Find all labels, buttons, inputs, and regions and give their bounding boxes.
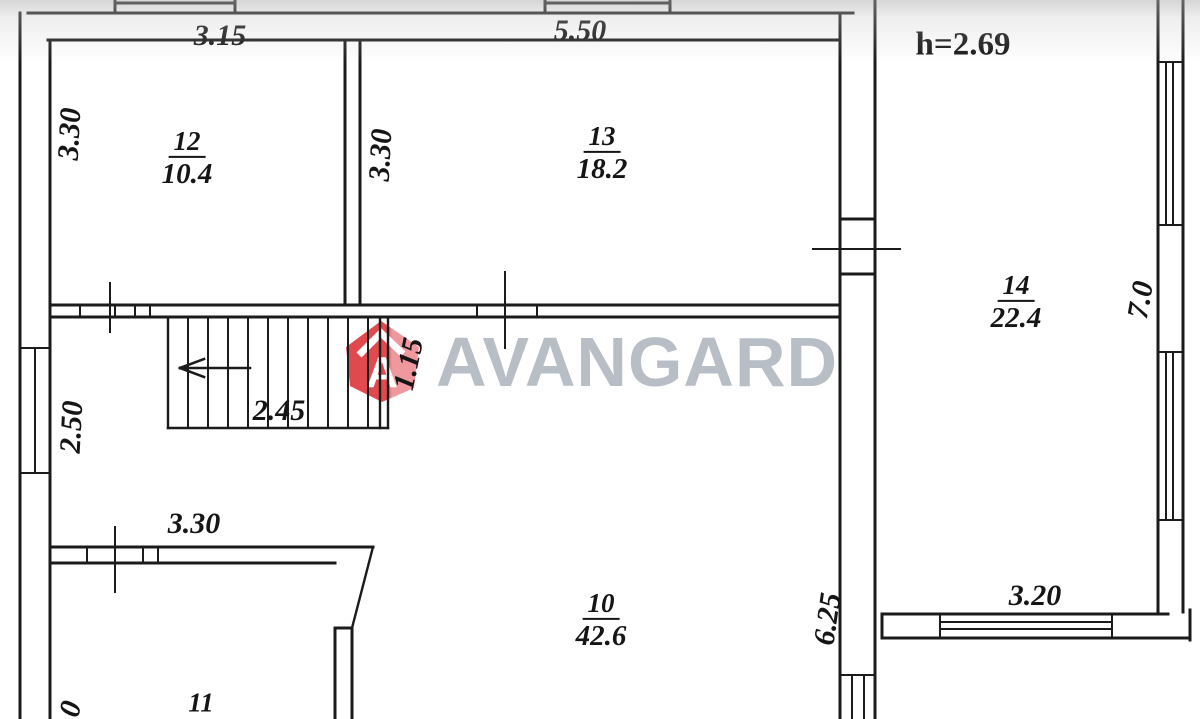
dim-room14-right: 7.0: [1121, 279, 1161, 322]
dim-room12-left: 3.30: [52, 107, 89, 161]
stair-direction-arrow: [180, 359, 250, 377]
room-11-number: 11: [183, 688, 219, 717]
room-14-area: 22.4: [991, 302, 1042, 335]
dim-room13-left: 3.30: [363, 128, 400, 182]
room-11-label: 11: [183, 688, 219, 717]
ceiling-height-label: h=2.69: [916, 27, 1011, 64]
room-12-number: 12: [169, 127, 206, 158]
room-10-area: 42.6: [576, 620, 627, 653]
dim-room10-right: 6.25: [808, 591, 849, 648]
room-12-label: 12 10.4: [162, 127, 213, 191]
room-14-label: 14 22.4: [991, 271, 1042, 335]
room-13-number: 13: [584, 122, 621, 153]
dim-stairs-length: 2.45: [253, 394, 306, 428]
room-13-area: 18.2: [577, 153, 628, 186]
dim-room14-bottom: 3.20: [1009, 579, 1062, 613]
room-14-number: 14: [998, 271, 1035, 302]
dim-top-room13: 5.50: [554, 14, 607, 48]
room-12-area: 10.4: [162, 158, 213, 191]
dim-hall-left: 2.50: [54, 400, 91, 454]
room-10-label: 10 42.6: [576, 589, 627, 653]
room-13-label: 13 18.2: [577, 122, 628, 186]
door-leaf: [352, 547, 373, 628]
floor-plan-screenshot: A AVANGARD: [0, 0, 1200, 719]
room-10-number: 10: [583, 589, 620, 620]
dim-room11-top: 3.30: [168, 507, 221, 541]
dim-top-room12: 3.15: [194, 19, 247, 53]
